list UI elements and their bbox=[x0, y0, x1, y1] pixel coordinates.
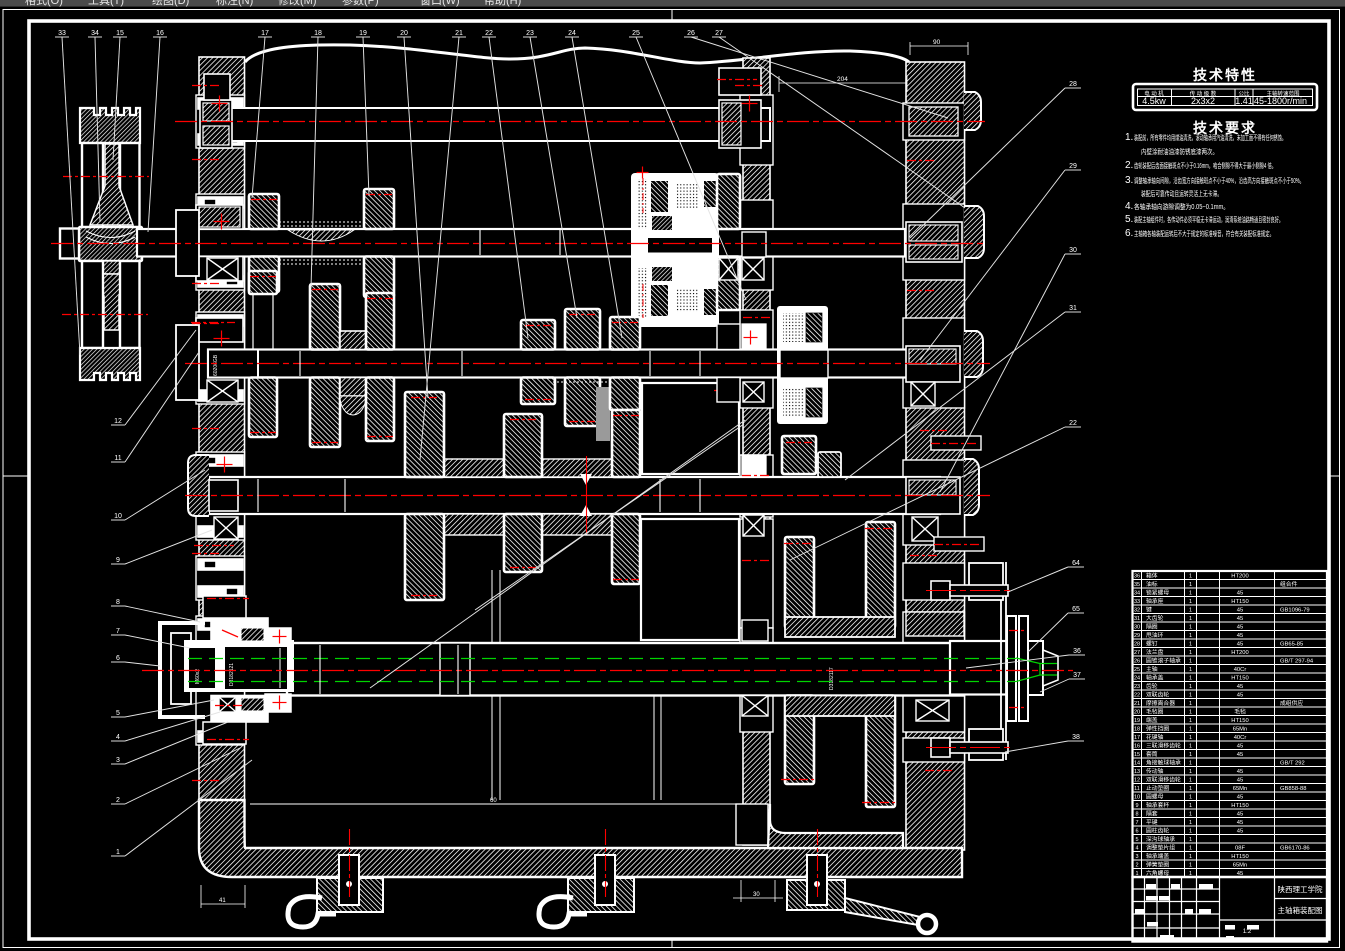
svg-text:1.: 1. bbox=[1125, 132, 1133, 143]
svg-text:花键轴: 花键轴 bbox=[1146, 733, 1164, 741]
svg-text:36: 36 bbox=[1134, 574, 1140, 580]
svg-text:34: 34 bbox=[1134, 591, 1140, 597]
svg-text:深沟球轴承: 深沟球轴承 bbox=[1146, 835, 1175, 843]
svg-text:格式(O): 格式(O) bbox=[25, 0, 63, 7]
svg-text:23: 23 bbox=[526, 30, 534, 37]
svg-text:11: 11 bbox=[114, 455, 121, 462]
svg-text:组合件: 组合件 bbox=[1280, 580, 1298, 588]
svg-text:1: 1 bbox=[116, 849, 120, 856]
svg-text:27: 27 bbox=[1134, 650, 1140, 656]
svg-text:1: 1 bbox=[1189, 735, 1192, 741]
svg-text:1: 1 bbox=[1189, 786, 1192, 792]
svg-text:5: 5 bbox=[1135, 837, 1138, 843]
svg-text:29: 29 bbox=[1069, 163, 1077, 170]
svg-text:26: 26 bbox=[687, 30, 695, 37]
svg-text:陕西理工学院: 陕西理工学院 bbox=[1278, 884, 1323, 894]
svg-text:45: 45 bbox=[1237, 795, 1243, 801]
svg-text:40Cr: 40Cr bbox=[1234, 667, 1247, 673]
svg-text:1: 1 bbox=[1189, 582, 1192, 588]
svg-text:45: 45 bbox=[1237, 820, 1243, 826]
svg-text:25: 25 bbox=[1134, 667, 1140, 673]
svg-text:24: 24 bbox=[568, 30, 576, 37]
svg-text:1: 1 bbox=[1189, 599, 1192, 605]
svg-text:1: 1 bbox=[1189, 701, 1192, 707]
svg-text:45: 45 bbox=[1237, 744, 1243, 750]
svg-text:45: 45 bbox=[1237, 642, 1243, 648]
svg-text:毛毡: 毛毡 bbox=[1234, 708, 1246, 716]
svg-text:45: 45 bbox=[1237, 633, 1243, 639]
svg-text:5: 5 bbox=[116, 710, 120, 717]
svg-text:10: 10 bbox=[114, 513, 122, 520]
svg-text:弹簧垫圈: 弹簧垫圈 bbox=[1146, 861, 1169, 869]
svg-text:3: 3 bbox=[116, 757, 120, 764]
svg-text:18: 18 bbox=[314, 30, 322, 37]
svg-text:45: 45 bbox=[1237, 769, 1243, 775]
svg-text:装配后可靠传动且运转灵活上无卡滞。: 装配后可靠传动且运转灵活上无卡滞。 bbox=[1141, 189, 1222, 198]
svg-text:10: 10 bbox=[1134, 795, 1140, 801]
svg-text:GB6170-86: GB6170-86 bbox=[1280, 846, 1310, 852]
svg-text:30: 30 bbox=[753, 892, 760, 898]
svg-text:24: 24 bbox=[1134, 676, 1140, 682]
svg-text:1: 1 bbox=[1189, 854, 1192, 860]
svg-text:45: 45 bbox=[1237, 778, 1243, 784]
svg-text:调整轴承轴向间隙，沿齿宽方向接触斑点不小于40%，沿齿高方向: 调整轴承轴向间隙，沿齿宽方向接触斑点不小于40%，沿齿高方向接触斑点不小于50%… bbox=[1134, 176, 1304, 185]
svg-text:1: 1 bbox=[1189, 812, 1192, 818]
svg-text:标注(N): 标注(N) bbox=[216, 0, 253, 7]
svg-text:箱体: 箱体 bbox=[1146, 572, 1158, 580]
svg-text:GB/T 292: GB/T 292 bbox=[1280, 761, 1305, 767]
svg-text:2: 2 bbox=[1135, 863, 1138, 869]
svg-text:轴承端盖: 轴承端盖 bbox=[1146, 852, 1169, 860]
svg-text:3: 3 bbox=[1135, 854, 1138, 860]
svg-text:31: 31 bbox=[1069, 305, 1077, 312]
svg-text:1: 1 bbox=[1189, 803, 1192, 809]
svg-text:油标: 油标 bbox=[1146, 580, 1158, 588]
svg-text:1:2: 1:2 bbox=[1243, 929, 1252, 935]
svg-text:技术要求: 技术要求 bbox=[1193, 120, 1257, 136]
svg-text:27: 27 bbox=[715, 30, 723, 37]
svg-text:31: 31 bbox=[1134, 616, 1140, 622]
svg-text:1: 1 bbox=[1189, 846, 1192, 852]
svg-text:装配前，所有零件均用煤油清洗，滚动轴承用汽油清洗，未加工面不: 装配前，所有零件均用煤油清洗，滚动轴承用汽油清洗，未加工面不得有任何锈蚀。 bbox=[1134, 133, 1286, 142]
svg-text:工具(T): 工具(T) bbox=[88, 0, 124, 7]
svg-text:45: 45 bbox=[1237, 812, 1243, 818]
svg-text:齿轮: 齿轮 bbox=[1146, 682, 1158, 690]
svg-text:装配主轴组件时，各传动件必须平稳无卡滞运动，润滑系统油路畅通: 装配主轴组件时，各传动件必须平稳无卡滞运动，润滑系统油路畅通且密封良好。 bbox=[1134, 215, 1283, 224]
svg-text:204: 204 bbox=[837, 76, 848, 83]
svg-text:1: 1 bbox=[1189, 616, 1192, 622]
svg-text:4.: 4. bbox=[1125, 201, 1133, 212]
svg-text:5.: 5. bbox=[1125, 214, 1133, 225]
svg-text:窗口(W): 窗口(W) bbox=[420, 0, 460, 7]
svg-text:65Mn: 65Mn bbox=[1233, 727, 1248, 733]
svg-text:锁紧螺母: 锁紧螺母 bbox=[1146, 589, 1169, 597]
svg-text:1: 1 bbox=[1189, 820, 1192, 826]
svg-text:2: 2 bbox=[116, 797, 120, 804]
svg-text:45: 45 bbox=[1237, 693, 1243, 699]
svg-text:HT150: HT150 bbox=[1231, 676, 1248, 682]
svg-text:端盖: 端盖 bbox=[1146, 716, 1158, 724]
svg-text:19: 19 bbox=[359, 30, 367, 37]
svg-text:6.: 6. bbox=[1125, 228, 1133, 239]
svg-text:36: 36 bbox=[1073, 648, 1081, 655]
svg-text:1: 1 bbox=[1189, 778, 1192, 784]
svg-text:22: 22 bbox=[1134, 693, 1140, 699]
svg-text:GB/T 297-94: GB/T 297-94 bbox=[1280, 659, 1314, 665]
svg-text:45: 45 bbox=[1237, 684, 1243, 690]
svg-text:1: 1 bbox=[1189, 769, 1192, 775]
svg-text:平键: 平键 bbox=[1146, 818, 1158, 826]
svg-text:30: 30 bbox=[1069, 247, 1077, 254]
svg-text:GB65-85: GB65-85 bbox=[1280, 642, 1303, 648]
svg-text:1: 1 bbox=[1189, 633, 1192, 639]
svg-text:12: 12 bbox=[1134, 778, 1140, 784]
svg-text:20: 20 bbox=[1134, 710, 1140, 716]
svg-text:45: 45 bbox=[1237, 829, 1243, 835]
svg-text:成组供应: 成组供应 bbox=[1280, 699, 1303, 707]
svg-text:HT150: HT150 bbox=[1231, 599, 1248, 605]
svg-text:1: 1 bbox=[1189, 625, 1192, 631]
svg-text:技术特性: 技术特性 bbox=[1193, 67, 1257, 83]
svg-text:双联滑移齿轮: 双联滑移齿轮 bbox=[1146, 776, 1181, 784]
svg-text:传动轴: 传动轴 bbox=[1146, 767, 1164, 775]
svg-text:13: 13 bbox=[1134, 769, 1140, 775]
svg-text:16: 16 bbox=[1134, 744, 1140, 750]
svg-text:圆柱齿轮: 圆柱齿轮 bbox=[1146, 827, 1169, 835]
svg-text:11: 11 bbox=[1134, 786, 1140, 792]
svg-text:1: 1 bbox=[1189, 650, 1192, 656]
svg-text:37: 37 bbox=[1073, 672, 1081, 679]
svg-text:1: 1 bbox=[1189, 591, 1192, 597]
svg-text:90: 90 bbox=[933, 39, 941, 46]
svg-text:摩擦离合器: 摩擦离合器 bbox=[1146, 699, 1175, 707]
svg-text:22: 22 bbox=[1069, 420, 1077, 427]
svg-text:毛毡圈: 毛毡圈 bbox=[1146, 708, 1164, 716]
svg-text:65Mn: 65Mn bbox=[1233, 863, 1248, 869]
svg-text:35: 35 bbox=[1134, 582, 1140, 588]
svg-text:绘图(D): 绘图(D) bbox=[152, 0, 189, 7]
svg-text:参数(P): 参数(P) bbox=[342, 0, 379, 7]
svg-text:1: 1 bbox=[1189, 659, 1192, 665]
svg-text:HT150: HT150 bbox=[1231, 854, 1248, 860]
svg-text:甩油环: 甩油环 bbox=[1146, 631, 1164, 639]
svg-text:HT150: HT150 bbox=[1231, 718, 1248, 724]
svg-text:圆螺母: 圆螺母 bbox=[1146, 793, 1164, 801]
svg-text:18: 18 bbox=[1134, 727, 1140, 733]
svg-text:1: 1 bbox=[1189, 752, 1192, 758]
svg-text:41: 41 bbox=[219, 898, 226, 904]
svg-text:9: 9 bbox=[1135, 803, 1138, 809]
svg-text:08F: 08F bbox=[1235, 846, 1245, 852]
svg-text:1: 1 bbox=[1189, 667, 1192, 673]
svg-text:角接触球轴承: 角接触球轴承 bbox=[1146, 759, 1181, 767]
svg-text:45: 45 bbox=[1237, 752, 1243, 758]
svg-text:2.: 2. bbox=[1125, 160, 1133, 171]
svg-text:1: 1 bbox=[1189, 574, 1192, 580]
svg-text:轴承套杯: 轴承套杯 bbox=[1146, 801, 1169, 809]
svg-text:15: 15 bbox=[1134, 752, 1140, 758]
svg-text:28: 28 bbox=[1134, 642, 1140, 648]
svg-text:23: 23 bbox=[1134, 684, 1140, 690]
svg-text:6: 6 bbox=[116, 655, 120, 662]
svg-text:1: 1 bbox=[1189, 693, 1192, 699]
svg-text:4: 4 bbox=[116, 734, 120, 741]
svg-text:1: 1 bbox=[1189, 710, 1192, 716]
svg-text:止动垫圈: 止动垫圈 bbox=[1146, 784, 1169, 792]
svg-text:1: 1 bbox=[1189, 718, 1192, 724]
svg-text:修改(M): 修改(M) bbox=[278, 0, 317, 7]
svg-text:齿轮装配后齿面接触斑点不小于0.16mm，啮合侧隙不得大于最: 齿轮装配后齿面接触斑点不小于0.16mm，啮合侧隙不得大于最小侧隙4 倍。 bbox=[1134, 161, 1276, 170]
svg-text:帮助(H): 帮助(H) bbox=[484, 0, 521, 7]
svg-text:大齿轮: 大齿轮 bbox=[1146, 614, 1164, 622]
svg-text:38: 38 bbox=[1072, 734, 1080, 741]
svg-text:33: 33 bbox=[58, 30, 66, 37]
svg-text:HT200: HT200 bbox=[1231, 650, 1248, 656]
svg-text:8: 8 bbox=[116, 599, 120, 606]
svg-text:34: 34 bbox=[91, 30, 99, 37]
svg-text:65: 65 bbox=[1072, 606, 1080, 613]
svg-text:螺钉: 螺钉 bbox=[1146, 640, 1158, 648]
svg-text:HT200: HT200 bbox=[1231, 574, 1248, 580]
svg-text:29: 29 bbox=[1134, 633, 1140, 639]
svg-text:键: 键 bbox=[1146, 606, 1152, 614]
svg-text:22: 22 bbox=[485, 30, 493, 37]
svg-text:20: 20 bbox=[400, 30, 408, 37]
svg-text:1: 1 bbox=[1189, 863, 1192, 869]
svg-text:轴承座: 轴承座 bbox=[1146, 597, 1164, 605]
svg-text:32: 32 bbox=[1134, 608, 1140, 614]
svg-text:4.5kw: 4.5kw bbox=[1142, 96, 1166, 106]
svg-text:45: 45 bbox=[1237, 625, 1243, 631]
svg-text:三联滑移齿轮: 三联滑移齿轮 bbox=[1146, 742, 1181, 750]
svg-text:28: 28 bbox=[1069, 81, 1077, 88]
svg-text:65Mn: 65Mn bbox=[1233, 786, 1248, 792]
svg-text:21: 21 bbox=[455, 30, 463, 37]
svg-text:7: 7 bbox=[1135, 820, 1138, 826]
svg-text:D3182121: D3182121 bbox=[229, 663, 235, 686]
svg-text:21: 21 bbox=[1134, 701, 1140, 707]
svg-text:各轴承轴向游隙调整为0.05~0.1mm。: 各轴承轴向游隙调整为0.05~0.1mm。 bbox=[1134, 202, 1229, 211]
svg-text:隔圈: 隔圈 bbox=[1146, 623, 1158, 631]
svg-text:7: 7 bbox=[116, 628, 120, 635]
svg-text:25: 25 bbox=[632, 30, 640, 37]
svg-text:主轴箱装配图: 主轴箱装配图 bbox=[1278, 905, 1323, 915]
svg-text:1: 1 bbox=[1189, 829, 1192, 835]
svg-text:法兰盘: 法兰盘 bbox=[1146, 648, 1164, 656]
svg-text:1: 1 bbox=[1189, 642, 1192, 648]
svg-text:隔套: 隔套 bbox=[1146, 810, 1158, 818]
svg-text:1: 1 bbox=[1189, 744, 1192, 750]
svg-text:45: 45 bbox=[1237, 608, 1243, 614]
svg-text:17: 17 bbox=[261, 30, 269, 37]
svg-text:26: 26 bbox=[1134, 659, 1140, 665]
svg-text:45: 45 bbox=[1237, 591, 1243, 597]
svg-text:HT150: HT150 bbox=[1231, 803, 1248, 809]
svg-text:15: 15 bbox=[116, 30, 124, 37]
svg-text:17: 17 bbox=[1134, 735, 1140, 741]
svg-text:60206GB: 60206GB bbox=[213, 354, 219, 376]
svg-text:9: 9 bbox=[116, 557, 120, 564]
svg-text:1: 1 bbox=[1189, 608, 1192, 614]
svg-text:2x3x2: 2x3x2 bbox=[1191, 96, 1215, 106]
svg-text:1: 1 bbox=[1189, 837, 1192, 843]
svg-text:4: 4 bbox=[1135, 846, 1138, 852]
svg-text:12: 12 bbox=[114, 418, 122, 425]
svg-text:1: 1 bbox=[1189, 676, 1192, 682]
svg-text:1.41: 1.41 bbox=[1235, 96, 1253, 106]
svg-text:套筒: 套筒 bbox=[1146, 750, 1158, 758]
svg-text:30: 30 bbox=[1134, 625, 1140, 631]
svg-text:3.: 3. bbox=[1125, 175, 1133, 186]
svg-text:弹性挡圈: 弹性挡圈 bbox=[1146, 725, 1169, 733]
svg-text:60: 60 bbox=[490, 798, 497, 804]
svg-text:1: 1 bbox=[1189, 684, 1192, 690]
svg-text:64: 64 bbox=[1072, 560, 1080, 567]
svg-text:圆锥滚子轴承: 圆锥滚子轴承 bbox=[1146, 657, 1181, 665]
svg-text:1: 1 bbox=[1189, 761, 1192, 767]
svg-text:1: 1 bbox=[1189, 795, 1192, 801]
svg-text:主轴箱各轴装配运转后不大于规定的标准噪音，符合有关装配标准规: 主轴箱各轴装配运转后不大于规定的标准噪音，符合有关装配标准规定。 bbox=[1134, 229, 1274, 238]
svg-text:33: 33 bbox=[1134, 599, 1140, 605]
svg-text:内壁涂耐油油漆防锈底漆两次。: 内壁涂耐油油漆防锈底漆两次。 bbox=[1141, 147, 1218, 156]
svg-text:调整垫片组: 调整垫片组 bbox=[1146, 844, 1175, 852]
svg-text:8: 8 bbox=[1135, 812, 1138, 818]
svg-text:45: 45 bbox=[1237, 616, 1243, 622]
svg-text:45-1800r/min: 45-1800r/min bbox=[1254, 96, 1307, 106]
svg-text:16: 16 bbox=[156, 30, 164, 37]
svg-text:GB858-88: GB858-88 bbox=[1280, 786, 1306, 792]
svg-text:6: 6 bbox=[1135, 829, 1138, 835]
svg-text:19: 19 bbox=[1134, 718, 1140, 724]
svg-text:14: 14 bbox=[1134, 761, 1140, 767]
svg-text:双联齿轮: 双联齿轮 bbox=[1146, 691, 1169, 699]
svg-text:GB1096-79: GB1096-79 bbox=[1280, 608, 1310, 614]
svg-text:轴承盖: 轴承盖 bbox=[1146, 674, 1164, 682]
svg-text:1: 1 bbox=[1189, 727, 1192, 733]
svg-text:40Cr: 40Cr bbox=[1234, 735, 1247, 741]
svg-text:主轴: 主轴 bbox=[1146, 665, 1158, 673]
